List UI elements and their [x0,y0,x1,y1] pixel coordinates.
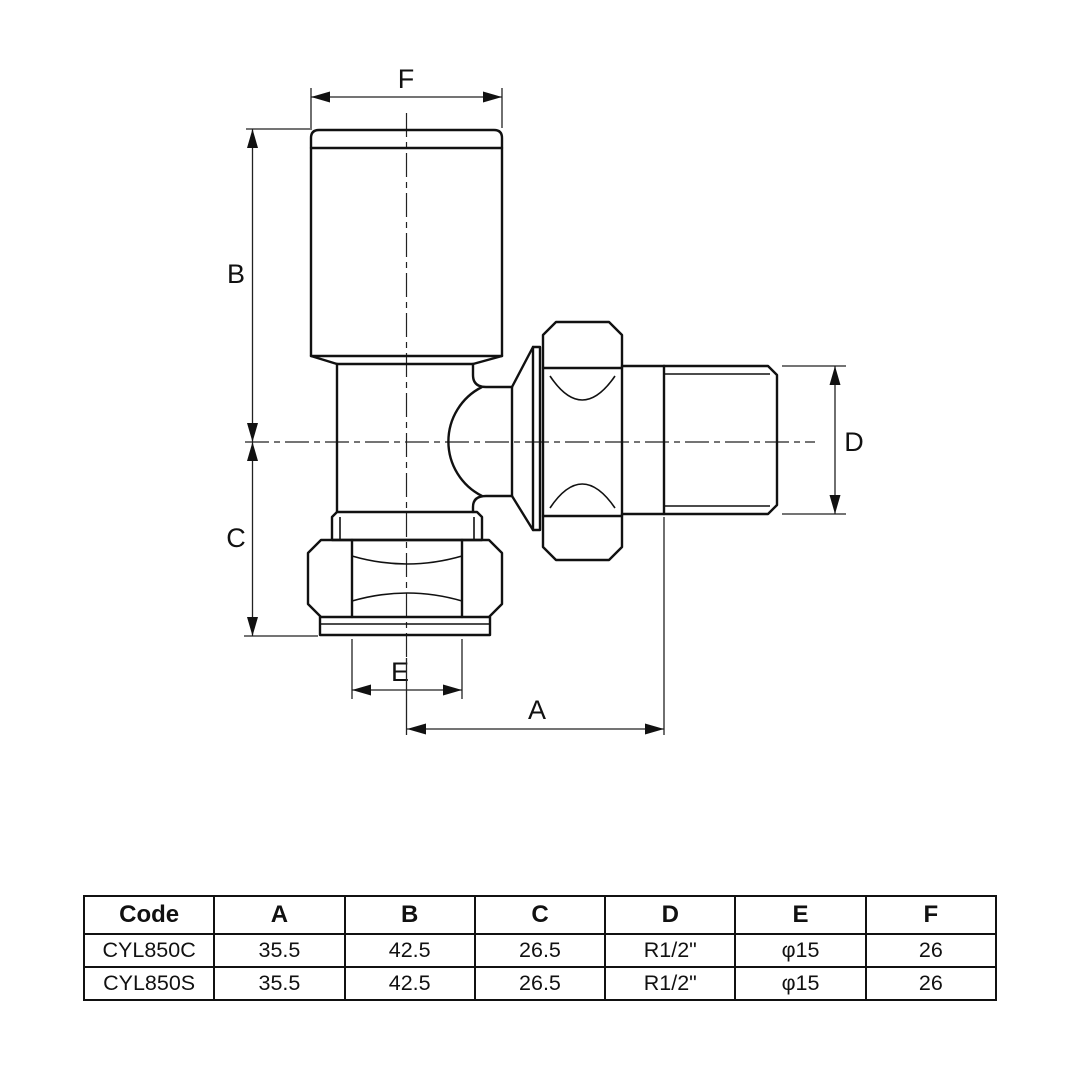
dim-e-arrow-right [443,685,462,696]
spec-header-d: D [605,896,735,934]
table-row: CYL850C 35.5 42.5 26.5 R1/2" φ15 26 [84,934,996,967]
dim-a-arrow-right [645,724,664,735]
spec-header-c: C [475,896,605,934]
dim-d-arrow-top [830,366,841,385]
spec-table: Code A B C D E F CYL850C 35.5 42.5 26.5 … [83,895,997,1001]
spec-table-header-row: Code A B C D E F [84,896,996,934]
cone-flange-band [533,347,540,530]
ring-outline [320,617,490,635]
dim-f-arrow-left [311,92,330,103]
dimension-d: D [782,366,864,514]
spec-header-code: Code [84,896,214,934]
union-nut-outline [543,322,622,560]
tailpiece-cone [512,347,540,530]
dim-c-arrow-top [247,442,258,461]
dim-label-b: B [227,259,245,289]
male-thread-tail [622,366,777,514]
dimension-c: C [226,442,318,636]
spec-table-container: Code A B C D E F CYL850C 35.5 42.5 26.5 … [83,895,997,1001]
spec-header-f: F [866,896,996,934]
cone-sides [512,347,533,530]
dim-label-d: D [844,427,864,457]
dim-d-extension-lines [782,366,846,514]
spec-cell-code: CYL850S [84,967,214,1000]
spec-cell-code: CYL850C [84,934,214,967]
spec-header-e: E [735,896,865,934]
dim-c-arrow-bottom [247,617,258,636]
thread-root-lines [664,374,770,506]
spec-cell-f: 26 [866,967,996,1000]
dim-b-arrow-top [247,129,258,148]
dim-a-arrow-left [407,724,426,735]
spec-header-b: B [345,896,475,934]
body-outlet-bottom [473,496,512,512]
dimension-b: B [227,129,312,442]
table-row: CYL850S 35.5 42.5 26.5 R1/2" φ15 26 [84,967,996,1000]
dim-f-arrow-right [483,92,502,103]
valve-body [311,356,512,512]
pipe-end-ring [320,617,490,635]
thread-outline [664,366,777,514]
spec-cell-e: φ15 [735,934,865,967]
spec-cell-b: 42.5 [345,967,475,1000]
technical-drawing-page: F B C D [0,0,1080,1080]
spec-cell-f: 26 [866,934,996,967]
spec-cell-a: 35.5 [214,967,344,1000]
dim-label-c: C [226,523,246,553]
dim-label-a: A [528,695,546,725]
dim-label-f: F [398,64,415,94]
compression-hex-nut [308,540,502,617]
union-hex-nut [543,322,622,560]
dimension-a: A [407,517,665,735]
dim-e-arrow-left [352,685,371,696]
spec-header-a: A [214,896,344,934]
spec-cell-b: 42.5 [345,934,475,967]
compression-nut-outline [308,540,502,617]
dim-d-arrow-bottom [830,495,841,514]
spec-cell-a: 35.5 [214,934,344,967]
dim-b-arrow-bottom [247,423,258,442]
spec-cell-c: 26.5 [475,934,605,967]
spec-cell-c: 26.5 [475,967,605,1000]
spec-cell-d: R1/2" [605,967,735,1000]
thread-shank-edges [622,366,664,514]
spec-cell-d: R1/2" [605,934,735,967]
spec-cell-e: φ15 [735,967,865,1000]
body-outlet-top [473,364,512,387]
centerlines [245,113,815,658]
